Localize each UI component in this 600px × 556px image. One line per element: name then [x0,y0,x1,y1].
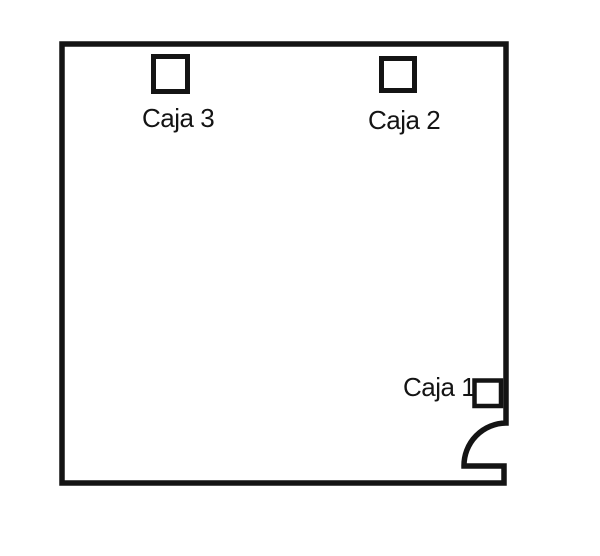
label-caja-1: Caja 1 [403,374,475,400]
box-caja-2 [382,59,415,91]
box-caja-3 [154,57,188,92]
box-caja-1 [475,381,502,407]
floor-plan-canvas: Caja 3 Caja 2 Caja 1 [0,0,600,556]
floor-plan-drawing [0,0,600,556]
label-caja-3: Caja 3 [142,105,214,131]
label-caja-2: Caja 2 [368,107,440,133]
